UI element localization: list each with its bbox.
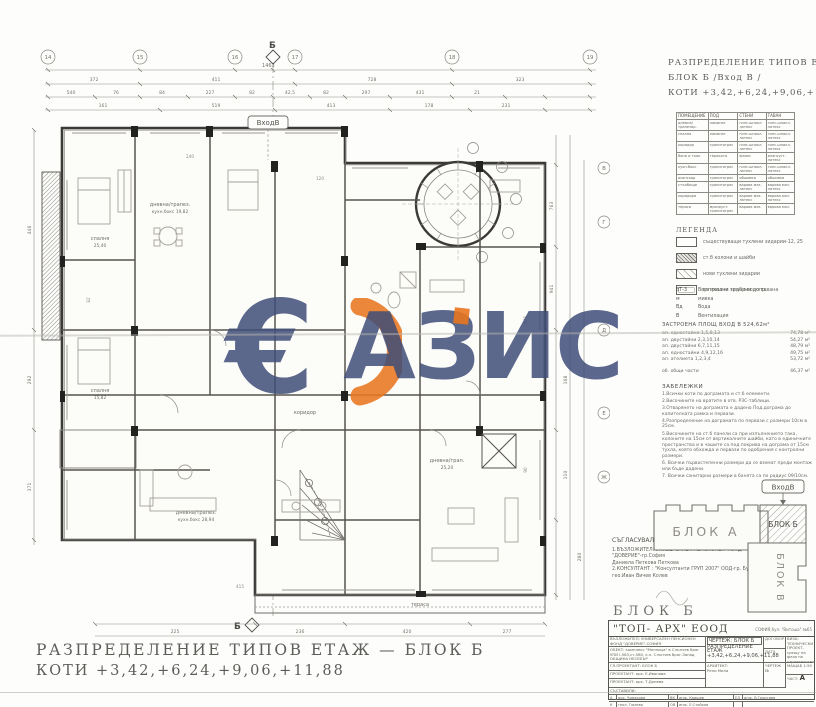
- note-item: 3.Отварянето на дограмата е дадено Под.д…: [662, 406, 814, 417]
- sheet-title-line1: РАЗПРЕДЕЛЕНИЕ ТИПОВ ЕТАЖ: [668, 56, 816, 71]
- svg-text:420: 420: [403, 629, 412, 635]
- sheet-title: РАЗПРЕДЕЛЕНИЕ ТИПОВ ЕТАЖ БЛОК Б /Вход В …: [668, 56, 816, 101]
- svg-text:спалня: спалня: [91, 388, 110, 394]
- visa-cell: ВИЗА: ТЕХНИЧЕСКИ ПРОЕКТ-срещу на фаза на…: [786, 636, 813, 663]
- svg-text:728: 728: [368, 77, 377, 83]
- svg-text:тераса: тераса: [411, 602, 429, 608]
- legend-swatch-existing-masonry: [676, 237, 697, 247]
- svg-text:4,20: 4,20: [380, 319, 390, 325]
- svg-text:82: 82: [86, 297, 91, 303]
- sheet-title-line3: КОТИ +3,42,+6,24,+9,06,+11,88: [668, 86, 816, 101]
- svg-text:Г: Г: [602, 220, 605, 226]
- svg-text:Е: Е: [602, 411, 605, 417]
- svg-text:Б: Б: [234, 622, 241, 632]
- notes: ЗАБЕЛЕЖКИ 1.Всички коти по дограмата и с…: [662, 384, 814, 481]
- svg-text:120: 120: [316, 176, 324, 181]
- svg-text:240: 240: [186, 154, 194, 159]
- designer2-cell: ПРОЕКТАНТ: арх. Т.Донева: [609, 679, 706, 688]
- svg-text:84: 84: [159, 90, 165, 96]
- svg-text:371: 371: [27, 483, 33, 492]
- axis-bubbles-top: 14 15 16 17 18 19: [41, 50, 597, 64]
- svg-text:178: 178: [425, 103, 434, 109]
- svg-text:297: 297: [362, 90, 371, 96]
- key-plan: ВходВ БЛОК А БЛОК Б БЛОК В: [646, 478, 816, 618]
- svg-text:168: 168: [563, 376, 569, 385]
- lead-designer-cell: ГЛ.ПРОЕКТАНТ: БЛОК Б: [609, 663, 706, 671]
- svg-text:446: 446: [27, 226, 33, 235]
- legend-item: нови тухлени зидарии: [676, 269, 816, 279]
- svg-text:дневна/трапез.: дневна/трапез.: [176, 510, 217, 516]
- table-row: баня и тоал.теракотафаянсвлагоуст. латек…: [677, 153, 795, 164]
- svg-text:225: 225: [171, 629, 180, 635]
- utility-item: ВдВода: [676, 305, 816, 310]
- svg-text:ВходВ: ВходВ: [257, 119, 280, 127]
- svg-text:411: 411: [212, 77, 221, 83]
- note-item: 2.Височините на вратите в отв. РЗС-табли…: [662, 399, 814, 405]
- svg-text:16: 16: [232, 55, 239, 61]
- keyplan-block-a-label: БЛОК А: [672, 524, 739, 539]
- col-header: ПОД: [708, 113, 738, 120]
- table-row: стълбищегранитогресварова маз. латексвар…: [677, 182, 795, 193]
- svg-text:25,40: 25,40: [94, 243, 107, 249]
- svg-text:кухн.бокс 28,94: кухн.бокс 28,94: [178, 516, 215, 523]
- svg-text:519: 519: [212, 103, 221, 109]
- col-header: СТЕНИ: [738, 113, 766, 120]
- utility-item: ВТ-3Вертикални тръби-водопр.: [676, 288, 816, 293]
- drawing-cell: ЧЕРТЕЖ: БЛОК Б РАЗПРЕДЕЛЕНИЕ ЕТАЖ +3,42,…: [706, 636, 764, 663]
- svg-text:76: 76: [113, 90, 119, 96]
- legend-item: съществуващи тухлени зидарии-12, 25: [676, 237, 816, 247]
- axis-bubbles-right: В Г Д Е Ж: [598, 162, 610, 483]
- table-row: коридоригранитогресварова маз. латексвар…: [677, 193, 795, 204]
- svg-text:941: 941: [549, 285, 555, 294]
- area-item: ап. двустайни 6,7,11,1548,79 м²: [662, 344, 810, 349]
- dimension-chains-top: 1463 372 411 728 323 540 76 84 227 82 42…: [45, 63, 596, 112]
- architect-cell: АРХИТЕКТ: Рени Мила: [706, 663, 764, 688]
- keyplan-block-b-label: БЛОК Б: [768, 520, 798, 529]
- svg-text:19: 19: [587, 55, 594, 61]
- finish-schedule-table: ПОМЕЩЕНИЕ ПОД СТЕНИ ТАВАН дневна/ трапез…: [676, 112, 795, 215]
- area-item: ап. ателиета 1,2,3,453,72 м²: [662, 357, 810, 362]
- svg-text:763: 763: [549, 202, 555, 211]
- svg-text:В: В: [602, 166, 606, 172]
- scan-fold-line-bottom: [0, 692, 816, 693]
- svg-text:Б: Б: [269, 41, 276, 51]
- col-header: ТАВАН: [766, 113, 794, 120]
- svg-text:14: 14: [45, 55, 52, 61]
- keyplan-entrance-label: ВходВ: [772, 484, 795, 492]
- area-item: ап. едностайни 4,9,12,1649,75 м²: [662, 351, 810, 356]
- svg-text:375: 375: [523, 316, 528, 324]
- legend-swatch-new-masonry: [676, 269, 697, 279]
- svg-text:баня: баня: [379, 312, 391, 318]
- legend-title: ЛЕГЕНДА: [676, 226, 816, 234]
- date-cell: ДАТА: [764, 649, 786, 663]
- utility-legend: ВТ-3Вертикални тръби-водопр. ммивка ВдВо…: [676, 288, 816, 322]
- svg-text:82: 82: [323, 90, 329, 96]
- svg-text:Ж: Ж: [601, 475, 607, 481]
- areas-title: ЗАСТРОЕНА ПЛОЩ ВХОД В 524,62м²: [662, 322, 810, 328]
- note-item: 1.Всички коти по дограмата и ст.б елемен…: [662, 392, 814, 398]
- notes-title: ЗАБЕЛЕЖКИ: [662, 384, 814, 390]
- svg-text:292: 292: [27, 376, 33, 385]
- svg-text:277: 277: [503, 629, 512, 635]
- client-cell: ВЪЗЛОЖИТЕЛ: УНИВЕРСАЛЕН ПЕНСИОНЕН ФОНД "…: [609, 636, 706, 647]
- svg-text:21: 21: [474, 90, 480, 96]
- svg-text:90: 90: [523, 467, 528, 473]
- svg-text:110: 110: [563, 471, 569, 480]
- svg-text:спалня: спалня: [91, 236, 110, 242]
- svg-text:413: 413: [327, 103, 336, 109]
- svg-text:15: 15: [137, 55, 144, 61]
- designer1-cell: ПРОЕКТАНТ: арх. Е.Иванова: [609, 671, 706, 679]
- dimension-chain-left: 446 292 371: [27, 128, 36, 545]
- col-header: ПОМЕЩЕНИЕ: [677, 113, 709, 120]
- title-block: "ТОП- АРХ" ЕООД СОФИЯ,бул. "Витоша" №65 …: [608, 620, 815, 700]
- table-row: терасимразоуст. гранитогресварова маз.ва…: [677, 204, 795, 215]
- contract-cell: ДОГОВОР: [764, 636, 786, 649]
- object-cell: ОБЕКТ: комплекс "Мелница" в Слънчев бряг…: [609, 647, 706, 663]
- svg-text:17: 17: [292, 55, 299, 61]
- svg-text:540: 540: [67, 90, 76, 96]
- table-row: асансьоргранитогресобшивкаобшивка: [677, 175, 795, 182]
- utility-item: ВВентилация: [676, 314, 816, 319]
- company-address: СОФИЯ,бул. "Витоша" №65: [755, 627, 812, 632]
- table-header-row: ПОМЕЩЕНИЕ ПОД СТЕНИ ТАВАН: [677, 113, 795, 120]
- svg-text:161: 161: [99, 103, 108, 109]
- svg-text:323: 323: [516, 77, 525, 83]
- svg-text:25,20: 25,20: [441, 465, 454, 471]
- note-item: 4.Разпределение на дограмата по первази …: [662, 419, 814, 430]
- svg-text:280: 280: [577, 553, 583, 562]
- signature-row: А арх. Чомакова ВК инж. Каишев ЕЛ инж. В…: [609, 694, 814, 700]
- table-row: спалняламинатгипс.шпакл. латексгипс.шпак…: [677, 131, 795, 142]
- svg-text:372: 372: [90, 77, 99, 83]
- svg-text:227: 227: [206, 90, 215, 96]
- signature-row: К геол. Гюлева ОВ инж. Е.Стайков: [609, 701, 814, 707]
- legend-swatch-concrete: [676, 253, 697, 263]
- legend-item: ст.б колони и шайби: [676, 253, 816, 263]
- sheet-no-cell: ЧЕРТЕЖ №: [764, 663, 786, 688]
- signature-scribble: [656, 591, 688, 605]
- area-common: об. общи части46,37 м²: [662, 369, 810, 374]
- svg-text:431: 431: [416, 90, 425, 96]
- svg-text:коридор: коридор: [294, 410, 316, 416]
- svg-text:42,5: 42,5: [285, 90, 295, 96]
- sheet-title-line2: БЛОК Б /Вход В /: [668, 71, 816, 86]
- floor-plan-drawing: 1463 372 411 728 323 540 76 84 227 82 42…: [0, 0, 610, 700]
- table-row: дневна/ трапезар.ламинатгипс.шпакл. лате…: [677, 120, 795, 131]
- svg-text:кухн.бокс 19,82: кухн.бокс 19,82: [152, 208, 189, 215]
- utility-item: ммивка: [676, 297, 816, 302]
- company-name: "ТОП- АРХ" ЕООД: [613, 623, 729, 635]
- table-row: коридоргранитогресгипс.шпакл. латексгипс…: [677, 142, 795, 153]
- svg-text:15,82: 15,82: [94, 395, 107, 401]
- dimension-chain-bottom: 225 236 420 277: [93, 622, 547, 636]
- svg-text:415: 415: [236, 584, 244, 589]
- built-up-areas: ЗАСТРОЕНА ПЛОЩ ВХОД В 524,62м² ап. еднос…: [662, 322, 810, 376]
- svg-text:дневна/трап.: дневна/трап.: [430, 458, 465, 464]
- svg-text:82: 82: [249, 90, 255, 96]
- part-cell: ЧАСТ: А: [786, 675, 813, 688]
- note-item: 5.Височините на ст.б панели са при изпъл…: [662, 432, 814, 460]
- table-row: кухн.боксгранитогресгипс.шпакл. латексги…: [677, 164, 795, 175]
- svg-text:18: 18: [449, 55, 456, 61]
- title-block-header: "ТОП- АРХ" ЕООД СОФИЯ,бул. "Витоша" №65: [609, 621, 814, 637]
- note-item: 6. Всички първостепенни размери да се вз…: [662, 461, 814, 472]
- area-item: ап. двустайни 2,3,10,1454,27 м²: [662, 338, 810, 343]
- dimension-chains-right: 763 941 168 110 280: [549, 135, 584, 600]
- svg-text:236: 236: [296, 629, 305, 635]
- svg-text:дневна/трапез.: дневна/трапез.: [150, 202, 191, 208]
- keyplan-block-v-label: БЛОК В: [774, 553, 785, 602]
- svg-text:231: 231: [502, 103, 511, 109]
